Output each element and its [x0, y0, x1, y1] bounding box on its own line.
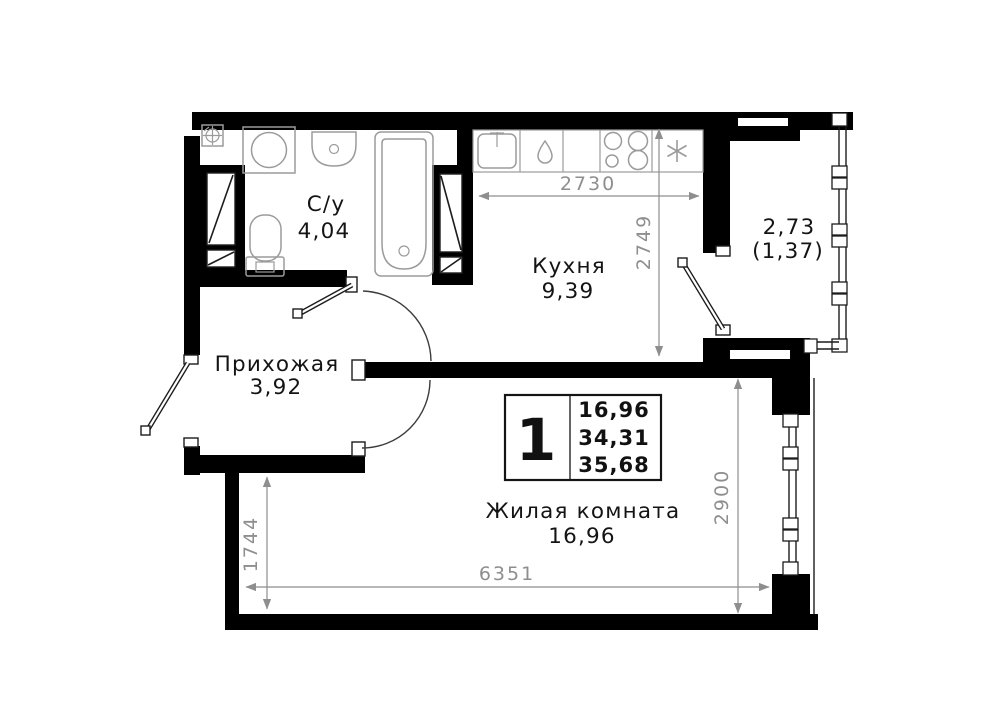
window-mullion	[832, 224, 847, 235]
window-mullion	[832, 236, 847, 247]
living-name: Жилая комната	[486, 499, 681, 524]
entry-door-leaf-cap	[141, 426, 150, 435]
living-door-swing-arc	[362, 380, 430, 448]
bathroom-door-leaf	[293, 285, 352, 318]
balcony-area-counted: (1,37)	[752, 239, 824, 264]
window-mullion	[832, 166, 847, 177]
hallway-area: 3,92	[250, 375, 303, 400]
info-room-count: 1	[516, 406, 556, 474]
balcony-door-jamb-top	[716, 246, 730, 256]
window-mullion	[783, 518, 798, 529]
stove-burner-bl	[606, 155, 618, 167]
bathroom-door-leaf-cap	[293, 309, 302, 318]
living-door-jamb-bottom	[352, 442, 365, 456]
window-mullion	[832, 294, 847, 305]
info-total-area: 35,68	[578, 453, 649, 477]
dim-label-hall-depth: 1744	[240, 516, 262, 572]
kitchen-name: Кухня	[532, 254, 606, 279]
dim-label-living-depth: 2900	[711, 469, 733, 525]
wall-living-right-top	[772, 373, 810, 415]
bathroom-name: С/у	[307, 192, 346, 217]
window-mullion	[783, 562, 798, 575]
window-mullion	[832, 178, 847, 189]
water-drop-icon	[538, 141, 552, 163]
kitchen-area: 9,39	[542, 279, 595, 304]
floor-plan-svg: 2730 2749 2900 6351 1744 С/у 4,04 Кухня …	[0, 0, 1000, 706]
info-box: 1 16,96 34,31 35,68	[505, 395, 661, 480]
entry-door-leaf	[141, 363, 188, 435]
stove-burner-br	[629, 151, 648, 170]
wall-hallway-bottom	[184, 455, 365, 473]
bathroom-area: 4,04	[298, 219, 351, 244]
bathtub-drain	[399, 246, 409, 256]
washbasin-drain	[330, 145, 339, 154]
wall-living-right-bottom	[772, 574, 810, 630]
wall-bottom	[225, 614, 818, 630]
wall-left-upper	[184, 136, 200, 355]
washing-machine-drum	[252, 133, 287, 168]
window-mullion	[804, 339, 817, 353]
window-mullion	[783, 459, 798, 470]
stove-burner-tr	[629, 132, 648, 151]
info-living-area: 16,96	[578, 398, 649, 422]
balcony-door-leaf-cap	[678, 258, 687, 267]
living-door-jamb-top	[352, 360, 365, 380]
info-area-no-balcony: 34,31	[578, 426, 649, 450]
toilet-bowl	[250, 215, 281, 261]
balcony-area-full: 2,73	[763, 215, 816, 240]
dim-label-living-width: 6351	[479, 563, 535, 585]
window-mullion	[783, 414, 798, 427]
wall-living-left	[225, 460, 239, 628]
window-mullion	[832, 339, 847, 352]
window-mullion	[832, 113, 847, 126]
window-mullion	[783, 530, 798, 541]
kitchen-fixtures	[473, 130, 703, 172]
balcony-door-leaf	[678, 258, 723, 329]
fridge-snowflake-icon	[667, 140, 686, 162]
washbasin	[312, 132, 356, 166]
kitchen-counter	[473, 130, 703, 172]
top-wall-window-slit	[738, 118, 788, 126]
bathroom-door-swing-arc	[363, 291, 431, 361]
bathtub-inner	[382, 139, 426, 269]
floor-plan-page: 2730 2749 2900 6351 1744 С/у 4,04 Кухня …	[0, 0, 1000, 706]
entry-door-jamb-bottom	[184, 438, 198, 447]
balcony-wall-window-slit	[730, 350, 790, 359]
wall-kitchen-balcony	[703, 130, 730, 253]
stove-burner-tl	[605, 133, 622, 150]
hallway-name: Прихожая	[215, 352, 340, 377]
dim-label-kitchen-depth: 2749	[633, 214, 655, 270]
dim-label-kitchen-width: 2730	[560, 173, 616, 195]
window-mullion	[832, 282, 847, 293]
window-mullion	[783, 447, 798, 458]
living-area: 16,96	[548, 524, 616, 549]
